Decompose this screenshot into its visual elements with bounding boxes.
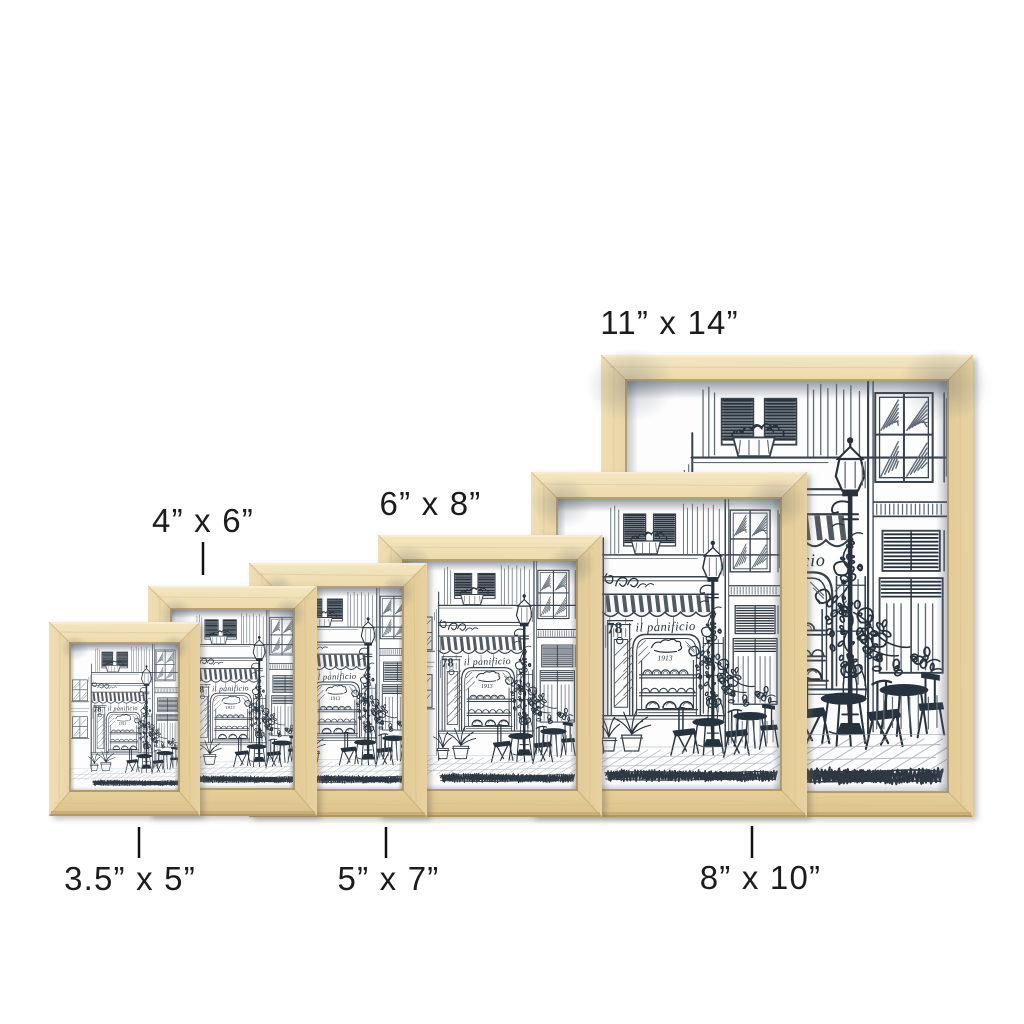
- svg-text:3.5” x 5”: 3.5” x 5”: [64, 860, 196, 897]
- svg-text:5” x 7”: 5” x 7”: [338, 860, 440, 897]
- svg-text:8” x 10”: 8” x 10”: [700, 859, 821, 896]
- svg-text:11” x 14”: 11” x 14”: [600, 304, 739, 341]
- svg-text:6” x 8”: 6” x 8”: [380, 485, 482, 522]
- svg-text:4” x 6”: 4” x 6”: [152, 502, 254, 539]
